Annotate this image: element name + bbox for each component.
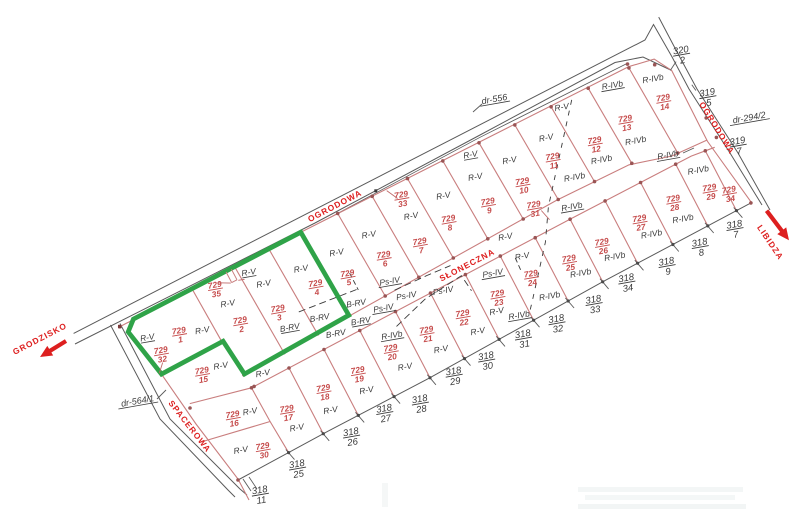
svg-text:11: 11 (256, 494, 268, 507)
svg-text:20: 20 (386, 351, 398, 363)
svg-text:22: 22 (458, 316, 470, 328)
svg-text:29: 29 (704, 191, 716, 203)
svg-text:21: 21 (421, 333, 433, 345)
svg-text:24: 24 (526, 277, 538, 289)
svg-text:31: 31 (518, 338, 530, 351)
svg-text:34: 34 (622, 282, 634, 295)
svg-text:28: 28 (668, 202, 680, 214)
